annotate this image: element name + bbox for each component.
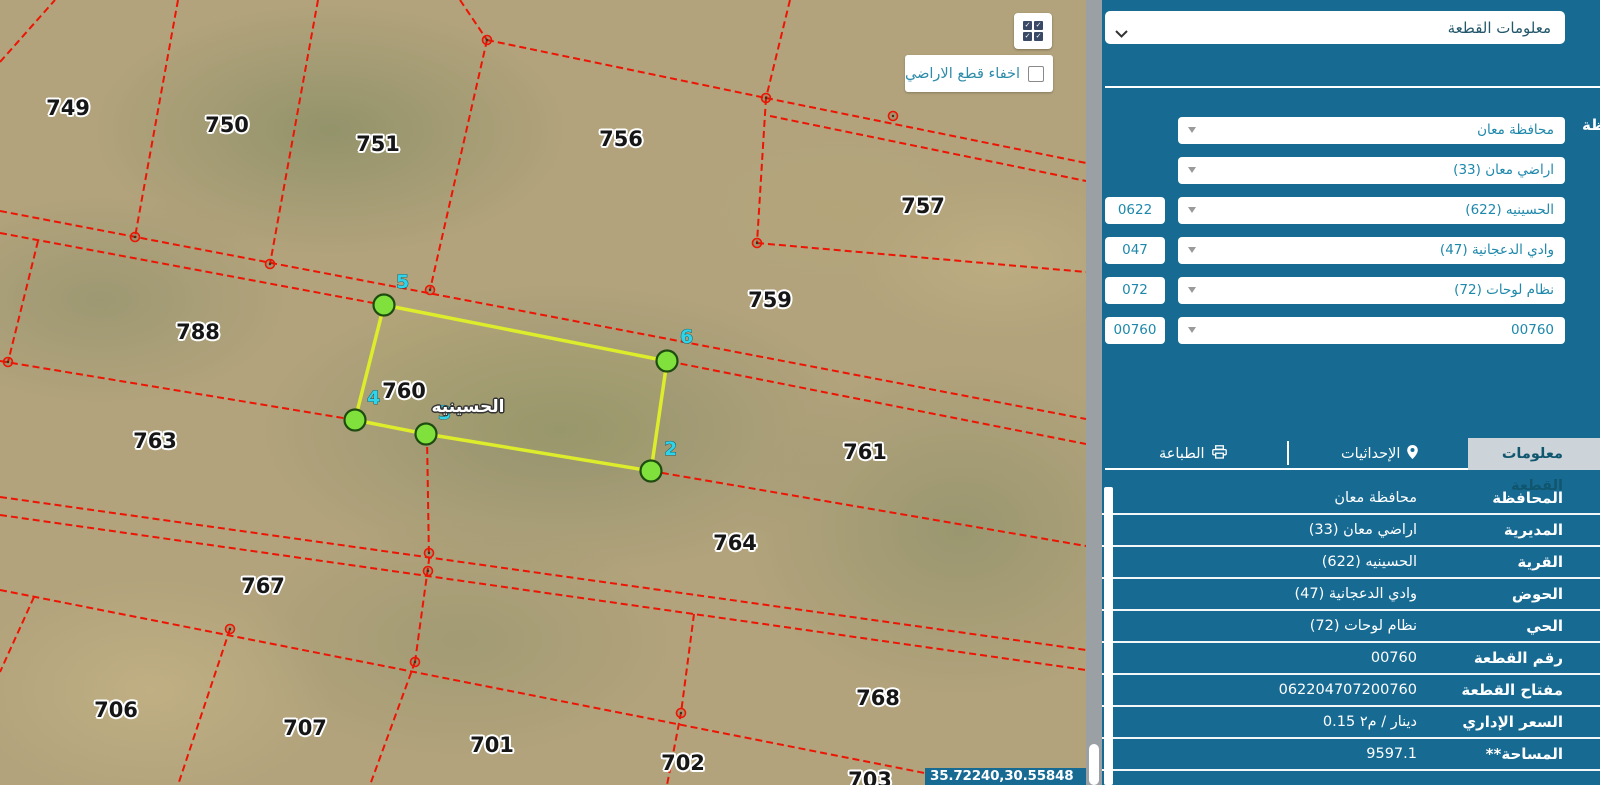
- parcel-attributes-table: المحافظةمحافظة معانالمديريةاراضي معان (3…: [1102, 483, 1600, 785]
- junction-dot-icon: [427, 570, 429, 572]
- parcel-number-label: 763: [133, 429, 177, 453]
- table-row: القريةالحسينيه (622): [1102, 547, 1600, 579]
- junction-dot-icon: [229, 628, 231, 630]
- parcel-overlay: 56234: [0, 0, 1086, 785]
- parcel-boundary-line: [757, 243, 1086, 272]
- vertex-number-label: 2: [664, 438, 677, 460]
- chevron-down-icon: [1188, 207, 1196, 213]
- clipped-field-label: ظة: [1582, 116, 1600, 134]
- table-row-value: نظام لوحات (72): [1102, 618, 1440, 634]
- chevron-down-icon: [1188, 287, 1196, 293]
- table-row-label: مفتاح القطعة: [1440, 681, 1600, 699]
- filter-select-3[interactable]: وادي الدعجانية (47): [1178, 237, 1565, 264]
- table-row: السعر الإداري0.15 دينار / م٢: [1102, 707, 1600, 739]
- tab-print-label: الطباعة: [1159, 446, 1205, 462]
- table-row: الحوضوادي الدعجانية (47): [1102, 579, 1600, 611]
- table-row-label: المساحة**: [1440, 745, 1600, 763]
- parcel-number-label: 701: [470, 733, 514, 757]
- junction-dot-icon: [892, 115, 894, 117]
- table-row: رقم القطعة00760: [1102, 643, 1600, 675]
- parcel-number-label: 757: [901, 194, 945, 218]
- table-row-label: المديرية: [1440, 521, 1600, 539]
- table-row: المساحة**9597.1: [1102, 739, 1600, 771]
- table-row-value: اراضي معان (33): [1102, 522, 1440, 538]
- parcel-boundary-line: [135, 0, 178, 237]
- table-row-label: المحافظة: [1440, 489, 1600, 507]
- tab-coordinates[interactable]: الإحداثيات: [1341, 438, 1418, 470]
- basemap-grid-button[interactable]: ✓✓✓✓: [1014, 13, 1052, 49]
- parcel-boundary-line: [757, 98, 766, 243]
- vertex-number-label: 5: [396, 271, 409, 293]
- table-row: المديريةاراضي معان (33): [1102, 515, 1600, 547]
- table-row: الحينظام لوحات (72): [1102, 611, 1600, 643]
- parcel-boundary-line: [178, 629, 230, 785]
- parcel-number-label: 768: [856, 686, 900, 710]
- filter-code-badge[interactable]: 00760: [1105, 317, 1165, 344]
- parcel-number-label: 750: [205, 113, 249, 137]
- parcel-number-label: 751: [356, 132, 400, 156]
- tab-print[interactable]: الطباعة: [1159, 438, 1227, 470]
- parcel-boundary-line: [0, 515, 1086, 670]
- table-row-label: القرية: [1440, 553, 1600, 571]
- tab-divider: [1287, 441, 1289, 465]
- table-row-partial: [1102, 771, 1600, 785]
- table-row-value: 00760: [1102, 650, 1440, 666]
- chevron-down-icon: [1115, 23, 1128, 42]
- filter-select-4[interactable]: نظام لوحات (72): [1178, 277, 1565, 304]
- pin-icon: [1407, 445, 1418, 463]
- junction-dot-icon: [429, 289, 431, 291]
- filter-code-badge[interactable]: 072: [1105, 277, 1165, 304]
- filter-select-2[interactable]: الحسينيه (622): [1178, 197, 1565, 224]
- filter-select-1[interactable]: اراضي معان (33): [1178, 157, 1565, 184]
- junction-dot-icon: [428, 552, 430, 554]
- parcel-number-label: 759: [748, 288, 792, 312]
- chevron-down-icon: [1188, 167, 1196, 173]
- table-row-label: رقم القطعة: [1440, 649, 1600, 667]
- junction-dot-icon: [756, 242, 758, 244]
- app-window: 56234 7497507517567577597887607637617647…: [0, 0, 1600, 785]
- divider: [1105, 86, 1600, 88]
- layers-grid-icon: ✓✓✓✓: [1023, 21, 1043, 41]
- table-row-value: 0.15 دينار / م٢: [1102, 714, 1440, 730]
- parcel-number-label: 706: [94, 698, 138, 722]
- table-row-value: 062204707200760: [1102, 682, 1440, 698]
- parcel-boundary-line: [270, 0, 318, 264]
- junction-dot-icon: [269, 263, 271, 265]
- junction-dot-icon: [765, 97, 767, 99]
- parcel-number-label: 764: [713, 531, 757, 555]
- satellite-map[interactable]: 56234 7497507517567577597887607637617647…: [0, 0, 1086, 785]
- parcel-number-label: 702: [661, 751, 705, 775]
- filter-select-value: وادي الدعجانية (47): [1440, 237, 1554, 264]
- parcel-boundary-line: [0, 0, 55, 62]
- chevron-down-icon: [1188, 127, 1196, 133]
- junction-dot-icon: [134, 236, 136, 238]
- filter-select-value: نظام لوحات (72): [1454, 277, 1554, 304]
- parcel-boundary-line: [766, 98, 1086, 163]
- panel-mode-select[interactable]: معلومات القطعة: [1105, 11, 1565, 44]
- junction-dot-icon: [680, 712, 682, 714]
- vertex-number-label: 6: [680, 326, 693, 348]
- hide-parcels-label: اخفاء قطع الاراضي: [905, 66, 1020, 82]
- parcel-boundary-line: [766, 0, 790, 98]
- cursor-coordinates: 35.72240,30.55848: [925, 768, 1086, 785]
- junction-dot-icon: [486, 39, 488, 41]
- filter-select-value: محافظة معان: [1477, 117, 1554, 144]
- filter-select-value: 00760: [1511, 317, 1554, 344]
- chevron-down-icon: [1188, 327, 1196, 333]
- parcel-boundary-line: [0, 497, 1086, 650]
- parcel-boundary-line: [770, 116, 1086, 181]
- parcel-boundary-line: [0, 361, 355, 420]
- table-row-label: الحوض: [1440, 585, 1600, 603]
- parcel-number-label: 760: [382, 379, 426, 403]
- parcel-number-label: 767: [241, 574, 285, 598]
- table-row-value: وادي الدعجانية (47): [1102, 586, 1440, 602]
- filter-code-badge[interactable]: 047: [1105, 237, 1165, 264]
- parcel-number-label: 707: [283, 716, 327, 740]
- parcel-vertex-handle[interactable]: [657, 351, 678, 372]
- parcel-boundary-line: [430, 40, 487, 290]
- parcel-vertex-handle[interactable]: [345, 410, 366, 431]
- table-row-label: السعر الإداري: [1440, 713, 1600, 731]
- chevron-down-icon: [1188, 247, 1196, 253]
- parcel-number-label: 788: [176, 320, 220, 344]
- table-row-value: محافظة معان: [1102, 490, 1440, 506]
- parcel-boundary-line: [460, 0, 487, 40]
- table-row-label: الحي: [1440, 617, 1600, 635]
- tab-parcel-info[interactable]: معلومات القطعة: [1468, 438, 1600, 470]
- filter-select-value: اراضي معان (33): [1453, 157, 1554, 184]
- parcel-boundary-line: [370, 662, 415, 785]
- junction-dot-icon: [414, 661, 416, 663]
- parcel-number-label: 749: [46, 96, 90, 120]
- table-row-value: الحسينيه (622): [1102, 554, 1440, 570]
- parcel-vertex-handle[interactable]: [641, 461, 662, 482]
- filter-code-badge[interactable]: 0622: [1105, 197, 1165, 224]
- parcel-info-panel: معلومات القطعة ظة محافظة معاناراضي معان …: [1102, 0, 1600, 785]
- parcel-boundary-line: [0, 597, 34, 672]
- parcel-number-label: 756: [599, 127, 643, 151]
- parcel-vertex-handle[interactable]: [416, 424, 437, 445]
- table-row-value: 9597.1: [1102, 746, 1440, 762]
- village-name-label: الحسينيه: [432, 397, 505, 417]
- junction-dot-icon: [7, 361, 9, 363]
- panel-mode-value: معلومات القطعة: [1448, 19, 1551, 37]
- filter-select-0[interactable]: محافظة معان: [1178, 117, 1565, 144]
- vertical-scrollbar-thumb[interactable]: [1089, 744, 1099, 785]
- printer-icon: [1212, 445, 1227, 463]
- table-scrollbar-thumb[interactable]: [1104, 487, 1113, 785]
- tab-coordinates-label: الإحداثيات: [1341, 446, 1400, 462]
- vertical-scrollbar-track[interactable]: [1086, 0, 1102, 785]
- vertex-number-label: 4: [367, 387, 380, 409]
- filter-select-value: الحسينيه (622): [1465, 197, 1554, 224]
- parcel-vertex-handle[interactable]: [374, 295, 395, 316]
- hide-parcels-control[interactable]: اخفاء قطع الاراضي: [905, 55, 1053, 92]
- parcel-number-label: 703: [848, 768, 892, 785]
- hide-parcels-checkbox[interactable]: [1028, 66, 1044, 82]
- parcel-boundary-line: [487, 40, 766, 98]
- filter-select-5[interactable]: 00760: [1178, 317, 1565, 344]
- parcel-number-label: 761: [843, 440, 887, 464]
- table-row: المحافظةمحافظة معان: [1102, 483, 1600, 515]
- parcel-boundary-line: [8, 241, 38, 362]
- table-row: مفتاح القطعة062204707200760: [1102, 675, 1600, 707]
